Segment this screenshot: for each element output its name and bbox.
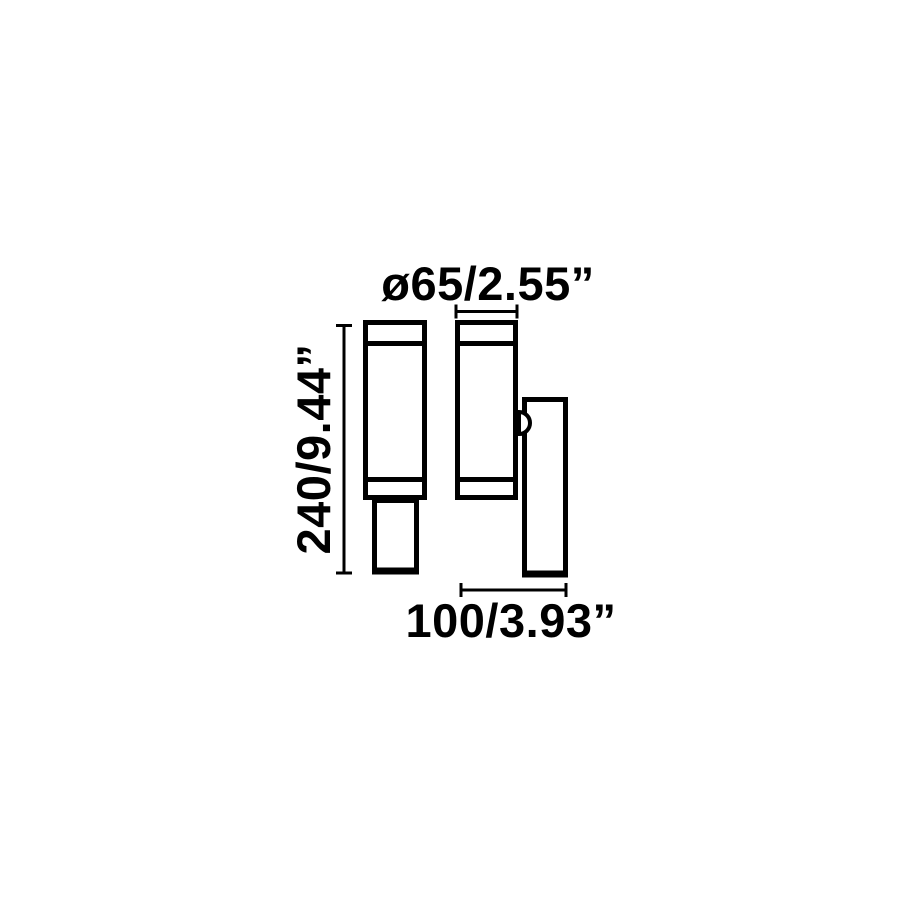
depth-dimension: 100/3.93” (406, 583, 617, 647)
side-body-outline (458, 323, 516, 498)
diameter-dimension-label: ø65/2.55” (381, 257, 595, 310)
front-view (363, 323, 427, 572)
diameter-dimension: ø65/2.55” (381, 257, 595, 319)
depth-dimension-label: 100/3.93” (406, 594, 617, 647)
height-dimension: 240/9.44” (287, 326, 352, 574)
page: ø65/2.55” 240/9.44” 100/3.93” (0, 0, 900, 900)
adjustment-knob (519, 412, 530, 434)
front-base-outline (375, 501, 417, 571)
front-body-outline (366, 323, 425, 498)
height-dimension-label: 240/9.44” (287, 344, 340, 555)
side-view (455, 323, 568, 575)
technical-drawing: ø65/2.55” 240/9.44” 100/3.93” (0, 0, 900, 900)
